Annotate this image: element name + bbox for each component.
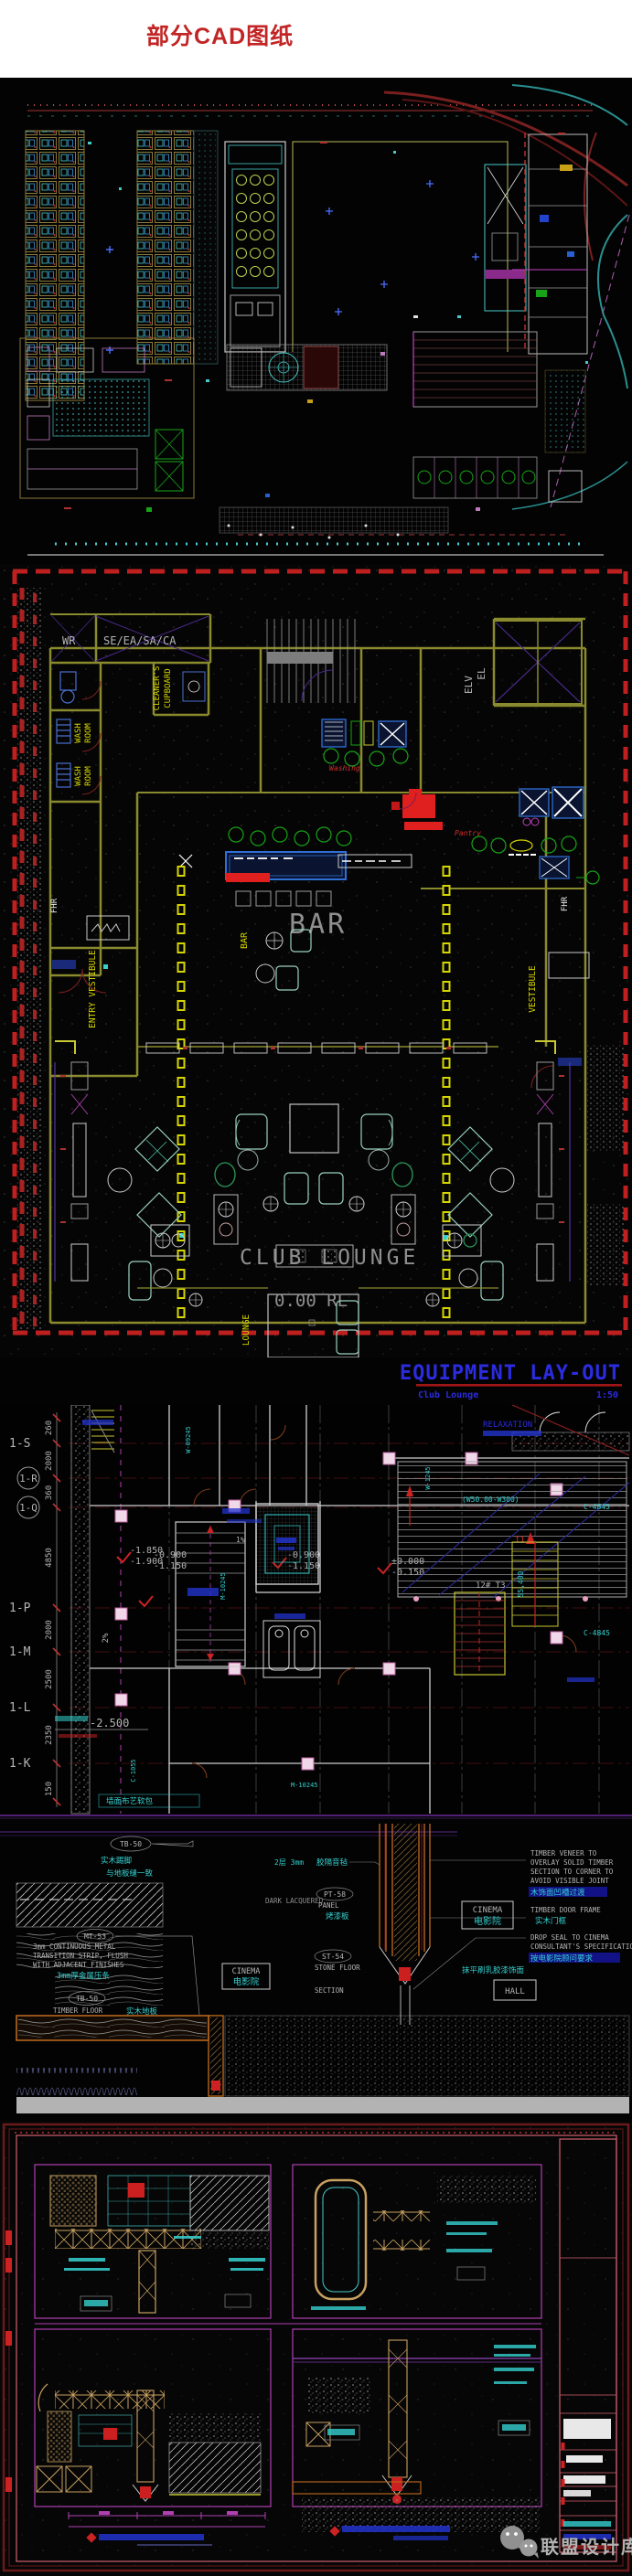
cleaners-label-2: CUPBOARD bbox=[164, 668, 173, 708]
section-label: SECTION bbox=[315, 1986, 344, 1995]
stone-floor-label: STONE FLOOR bbox=[315, 1964, 360, 1972]
code-c4845-a: C-4845 bbox=[584, 1503, 610, 1511]
metal-note-2: TRANSITION STRIP, FLUSH bbox=[33, 1952, 128, 1960]
dim-4850: 4850 bbox=[45, 1548, 54, 1568]
fhr-left-label: FHR bbox=[50, 898, 59, 913]
room-label-wr: WR bbox=[62, 634, 76, 647]
left-texture-band bbox=[16, 588, 42, 1330]
seal-cn: 按电影院顾问要求 bbox=[530, 1953, 594, 1964]
level-plan-drawing: 1-S 1-R 1-Q 1-P 1-M 1-L 1-K 260 2000 360… bbox=[0, 1405, 632, 1819]
dim-2000a: 2000 bbox=[45, 1451, 54, 1471]
seal-1: DROP SEAL TO CINEMA bbox=[530, 1933, 609, 1942]
cinema-label-right: CINEMA bbox=[473, 1906, 503, 1915]
veneer-3: SECTION TO CORNER TO bbox=[530, 1868, 614, 1876]
elev-d: -2.500 bbox=[90, 1717, 129, 1730]
detail-sheet-drawing: 联盟设计库 bbox=[0, 2121, 632, 2576]
hall-label: HALL bbox=[505, 1987, 525, 1996]
club-lounge-label: CLUB LOUNGE bbox=[240, 1246, 419, 1270]
veneer-4: AVOID VISIBLE JOINT bbox=[530, 1877, 609, 1885]
code-m10245-a: M-10245 bbox=[220, 1572, 227, 1600]
lounge-tag-label: LOUNGE bbox=[241, 1315, 252, 1347]
skirting-cn-1: 实木踢脚 bbox=[101, 1856, 132, 1866]
tb50-top: TB-50 bbox=[120, 1840, 142, 1848]
code-len: 55,400 bbox=[517, 1570, 525, 1597]
washroom-2-label-1: WASH bbox=[74, 766, 83, 786]
mt53-label: MT-53 bbox=[84, 1932, 106, 1941]
pt58-label: PT-58 bbox=[324, 1890, 346, 1899]
dim-360: 360 bbox=[45, 1485, 54, 1500]
bar-small-label: BAR bbox=[240, 931, 250, 949]
metal-note-1: 3mm CONTINUOUS METAL bbox=[33, 1943, 116, 1951]
grid-1s: 1-S bbox=[9, 1437, 30, 1451]
cad-club-lounge-plan: WR SE/EA/SA/CA WASH ROOM WASH ROOM CLEAN… bbox=[0, 564, 632, 1357]
washing-label: Washing bbox=[329, 764, 360, 772]
code-c4845-b: C-4845 bbox=[584, 1629, 610, 1637]
veneer-cn: 木饰面凹槽过渡 bbox=[530, 1888, 585, 1898]
code-m10245-b: M-10245 bbox=[291, 1782, 318, 1789]
st54-label: ST-54 bbox=[322, 1953, 344, 1961]
cad-detail-sections: TB-50 实木踢脚 与地板缝一致 2层 3mm DARK LACQUERED … bbox=[0, 1819, 632, 2121]
grid-1l: 1-L bbox=[9, 1701, 31, 1715]
bar-big-label: BAR bbox=[289, 909, 347, 941]
code-t1: T1 bbox=[515, 1536, 525, 1545]
sheet-title-banner: EQUIPMENT LAY-OUT Club Lounge 1:50 bbox=[0, 1357, 632, 1405]
paint-note: 抹平刷乳胶漆饰面 bbox=[462, 1965, 525, 1975]
cad-detail-sheet: 联盟设计库 bbox=[0, 2121, 632, 2576]
banner-title: EQUIPMENT LAY-OUT bbox=[400, 1362, 621, 1385]
grid-1k: 1-K bbox=[9, 1757, 31, 1771]
grid-1q: 1-Q bbox=[19, 1502, 37, 1514]
frame-cn: 实木门框 bbox=[535, 1916, 567, 1926]
banner-underline bbox=[416, 1384, 622, 1387]
slope-2pct: 2% bbox=[102, 1633, 111, 1643]
cinema-cn-left: 电影院 bbox=[233, 1976, 260, 1987]
dim-2000b: 2000 bbox=[45, 1620, 54, 1640]
watermark-text: 联盟设计库 bbox=[541, 2536, 632, 2558]
cinema-cn-right: 电影院 bbox=[474, 1915, 501, 1927]
fhr-right-label: FHR bbox=[561, 896, 570, 911]
insulation-note: 胶隔音毡 bbox=[316, 1857, 348, 1868]
grid-1p: 1-P bbox=[9, 1602, 31, 1615]
metal-note-cn: 3mm厚金属压条 bbox=[57, 1971, 110, 1981]
central-walkway bbox=[227, 345, 387, 390]
code-w09245: W-09245 bbox=[185, 1426, 192, 1453]
code-c1055: C-1055 bbox=[130, 1759, 137, 1782]
timber-floor-label: TIMBER FLOOR bbox=[53, 2007, 103, 2015]
banner-subtitle: Club Lounge bbox=[418, 1390, 478, 1400]
dark-lacquered: DARK LACQUERED bbox=[265, 1897, 324, 1905]
elevator-label-el: EL bbox=[476, 667, 487, 680]
pantry-label: Pantry bbox=[455, 829, 481, 837]
page-title: 部分CAD图纸 bbox=[146, 18, 294, 51]
club-lounge-drawing: WR SE/EA/SA/CA WASH ROOM WASH ROOM CLEAN… bbox=[0, 564, 632, 1357]
grid-1r: 1-R bbox=[19, 1473, 37, 1485]
wall-note: 墙面布艺软包 bbox=[106, 1796, 154, 1806]
layer-note: 2层 3mm bbox=[274, 1858, 304, 1867]
elev-b1-stair: -0.900 bbox=[154, 1550, 187, 1560]
cad-level-plan: 1-S 1-R 1-Q 1-P 1-M 1-L 1-K 260 2000 360… bbox=[0, 1405, 632, 1819]
cad-site-plan bbox=[0, 78, 632, 564]
site-plan-drawing bbox=[0, 78, 632, 564]
frame-label: TIMBER DOOR FRAME bbox=[530, 1906, 601, 1914]
veneer-1: TIMBER VENEER TO bbox=[530, 1849, 597, 1857]
detail-drawing: TB-50 实木踢脚 与地板缝一致 2层 3mm DARK LACQUERED … bbox=[0, 1819, 632, 2121]
cinema-label-left: CINEMA bbox=[232, 1967, 261, 1976]
page-header: 部分CAD图纸 bbox=[0, 0, 632, 78]
washroom-1-label-1: WASH bbox=[74, 723, 83, 743]
grid-1m: 1-M bbox=[9, 1645, 31, 1659]
vestibule-label: VESTIBULE bbox=[528, 965, 538, 1013]
dim-2500: 2500 bbox=[45, 1669, 54, 1689]
relaxation-label: RELAXATION bbox=[483, 1421, 532, 1430]
dim-2350: 2350 bbox=[45, 1725, 54, 1745]
code-stair: 12# T3 bbox=[476, 1581, 506, 1591]
dim-260: 260 bbox=[45, 1421, 54, 1435]
elevator-label-elv: ELV bbox=[463, 676, 475, 694]
skirting-cn-2: 与地板缝一致 bbox=[106, 1868, 154, 1879]
panel-cn: 烤漆板 bbox=[326, 1911, 349, 1921]
banner-drawing: EQUIPMENT LAY-OUT Club Lounge 1:50 bbox=[0, 1357, 632, 1405]
article-page: 部分CAD图纸 bbox=[0, 0, 632, 2576]
tb50-floor: TB-50 bbox=[76, 1995, 98, 2003]
room-label-shaft: SE/EA/SA/CA bbox=[103, 634, 177, 647]
banner-scale: 1:50 bbox=[596, 1390, 618, 1400]
veneer-2: OVERLAY SOLID TIMBER bbox=[530, 1858, 614, 1867]
panel-label: PANEL bbox=[318, 1901, 339, 1910]
plunge-pool bbox=[256, 1504, 318, 1584]
cleaners-label-1: CLEANER'S bbox=[153, 666, 162, 711]
metal-note-3: WITH ADJACENT FINISHES bbox=[33, 1961, 124, 1969]
code-w1245: W-1245 bbox=[424, 1466, 432, 1489]
code-range: (W50.00-W300) bbox=[462, 1496, 520, 1504]
washroom-2-label-2: ROOM bbox=[84, 766, 93, 786]
seal-2: CONSULTANT'S SPECIFICATION bbox=[530, 1943, 632, 1951]
washroom-1-label-2: ROOM bbox=[84, 723, 93, 743]
dim-150: 150 bbox=[45, 1782, 54, 1796]
